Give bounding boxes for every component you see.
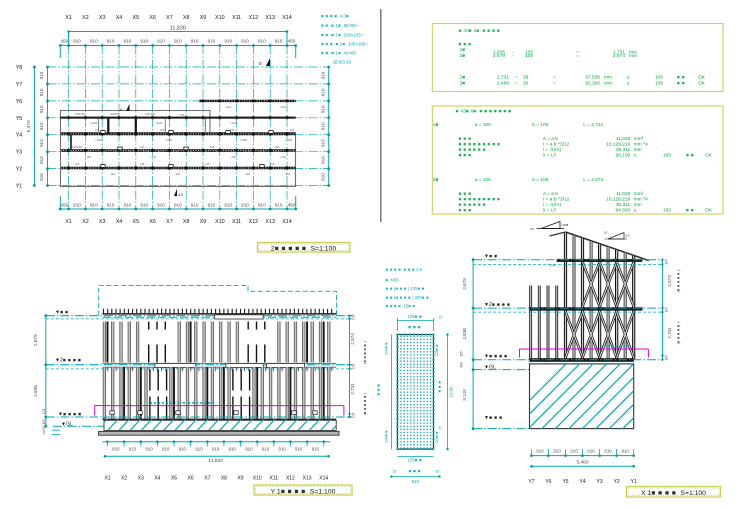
svg-text:I = a b ^3/12: I = a b ^3/12 <box>543 196 570 202</box>
svg-text:910: 910 <box>321 88 326 96</box>
svg-text:910: 910 <box>39 156 44 164</box>
svg-text:λ = L/i: λ = L/i <box>543 153 556 159</box>
svg-text:910: 910 <box>321 139 326 147</box>
svg-text:6,370: 6,370 <box>26 120 32 132</box>
svg-text:+728: +728 <box>150 155 156 159</box>
svg-text:■■■■■■: ■■■■■■ <box>459 148 488 153</box>
svg-text:Y3: Y3 <box>16 150 23 156</box>
svg-text:11,830: 11,830 <box>170 26 186 32</box>
svg-text:105x150: 105x150 <box>72 145 83 149</box>
svg-text:A = a b: A = a b <box>543 191 558 197</box>
svg-text:910: 910 <box>321 105 326 113</box>
svg-text:X1: X1 <box>104 476 110 482</box>
svg-text:910: 910 <box>604 449 612 454</box>
svg-text:125■■: 125■■ <box>407 458 423 463</box>
svg-text:105: 105 <box>459 351 463 357</box>
svg-text:Y2: Y2 <box>614 479 620 485</box>
svg-text:■■■■:4.0■: ■■■■:4.0■ <box>321 14 350 19</box>
svg-text:2,836: 2,836 <box>33 385 38 397</box>
svg-text:910: 910 <box>107 203 115 208</box>
svg-text:mm ^4: mm ^4 <box>634 196 649 202</box>
svg-text:2,574: 2,574 <box>350 333 355 345</box>
svg-text:+1082: +1082 <box>165 138 173 142</box>
svg-text:910: 910 <box>622 449 630 454</box>
svg-text:150: 150 <box>663 153 671 159</box>
svg-text:■■■: ■■■ <box>408 468 422 473</box>
svg-text:mm: mm <box>604 76 612 81</box>
svg-text:910: 910 <box>224 203 232 208</box>
svg-text:▼■■: ▼■■ <box>55 310 70 316</box>
svg-text:+728: +728 <box>85 155 91 159</box>
svg-text:mm: mm <box>634 203 642 208</box>
svg-text:X9: X9 <box>200 219 207 225</box>
svg-text:84.920: 84.920 <box>616 208 631 214</box>
svg-text:Y1: Y1 <box>16 184 23 190</box>
svg-text:X3: X3 <box>138 476 144 482</box>
svg-text:910: 910 <box>241 39 249 44</box>
svg-text:15: 15 <box>435 469 439 473</box>
svg-text:10,129,219: 10,129,219 <box>606 141 630 147</box>
svg-text:I = a b ^3/12: I = a b ^3/12 <box>543 141 570 147</box>
svg-text:Y1: Y1 <box>631 479 637 485</box>
svg-text:X12: X12 <box>249 15 259 21</box>
svg-text:Y7: Y7 <box>528 479 534 485</box>
svg-text:■■■■■■■■■: ■■■■■■■■■ <box>459 142 502 147</box>
svg-text:@303.33: @303.33 <box>333 60 351 65</box>
svg-text:■■■■■■: ■■■■■■ <box>459 203 488 208</box>
svg-text:910: 910 <box>258 203 266 208</box>
svg-text:■■■: ■■■ <box>459 137 473 142</box>
svg-text:Y4: Y4 <box>579 479 585 485</box>
svg-text:i = √(I/A): i = √(I/A) <box>543 202 562 208</box>
svg-text:OK: OK <box>698 81 706 87</box>
svg-text:30: 30 <box>523 81 529 87</box>
svg-text:105: 105 <box>352 364 356 370</box>
svg-text:910: 910 <box>229 447 237 452</box>
svg-text:105: 105 <box>290 128 295 132</box>
svg-text:105: 105 <box>352 314 356 320</box>
svg-text:910: 910 <box>321 71 326 79</box>
svg-text:910: 910 <box>262 447 270 452</box>
svg-text:450: 450 <box>61 203 69 208</box>
svg-text:5,460: 5,460 <box>576 460 588 466</box>
svg-text:450: 450 <box>288 203 296 208</box>
svg-text:150: 150 <box>663 208 671 214</box>
svg-text:910: 910 <box>162 447 170 452</box>
svg-text:450: 450 <box>61 39 69 44</box>
svg-text:2,574: 2,574 <box>667 275 672 287</box>
svg-text:105: 105 <box>664 355 668 361</box>
svg-text:15: 15 <box>439 426 443 430</box>
svg-text:■ N50: ■ N50 <box>386 277 400 282</box>
svg-text:910: 910 <box>124 203 132 208</box>
svg-text:/1,9: /1,9 <box>625 234 630 238</box>
svg-text:L = 2,574: L = 2,574 <box>583 177 603 183</box>
svg-text:X10: X10 <box>253 476 262 482</box>
svg-text:10,129,219: 10,129,219 <box>606 196 630 202</box>
svg-text:11,025: 11,025 <box>616 136 631 142</box>
svg-text:≥: ≥ <box>627 82 630 87</box>
svg-text:910: 910 <box>157 39 165 44</box>
svg-text:X6: X6 <box>149 15 156 21</box>
svg-text:2,679: 2,679 <box>493 53 505 59</box>
svg-text:11,025: 11,025 <box>616 191 631 197</box>
svg-text:+728: +728 <box>230 155 236 159</box>
svg-text:-364: -364 <box>285 172 291 176</box>
svg-text:+1436: +1436 <box>90 121 98 125</box>
svg-text:■■: ■■ <box>686 209 696 214</box>
svg-text:(■■■■■): (■■■■■) <box>676 269 681 292</box>
svg-text:105: 105 <box>180 113 185 117</box>
svg-text:910: 910 <box>245 447 253 452</box>
svg-text:a = 105: a = 105 <box>475 177 491 183</box>
svg-text:X3: X3 <box>99 219 106 225</box>
svg-text:■■:■1■ 105×105~: ■■:■1■ 105×105~ <box>321 33 364 38</box>
svg-text:105: 105 <box>42 409 46 415</box>
svg-text:mm²: mm² <box>634 136 644 142</box>
svg-text:-364: -364 <box>175 172 181 176</box>
svg-text:X11: X11 <box>270 476 279 482</box>
svg-text:Y6: Y6 <box>545 479 551 485</box>
svg-text:=: = <box>553 76 556 81</box>
svg-text:X2: X2 <box>82 219 89 225</box>
svg-text:1■: 1■ <box>433 122 441 128</box>
svg-text:97,536: 97,536 <box>585 75 600 81</box>
svg-text:mm ^4: mm ^4 <box>634 141 649 147</box>
svg-text:910: 910 <box>39 122 44 130</box>
svg-text:105: 105 <box>664 259 668 265</box>
svg-text:■■■■■■ GL+■,■■■■■■■: ■■■■■■ GL+■,■■■■■■■ <box>150 400 216 405</box>
svg-text:■■■: ■■■ <box>376 382 381 395</box>
svg-text:Y2: Y2 <box>16 167 23 173</box>
svg-text:÷: ÷ <box>515 82 518 87</box>
svg-text:105: 105 <box>210 145 215 149</box>
svg-text:910: 910 <box>208 39 216 44</box>
svg-text:mm²: mm² <box>634 191 644 197</box>
svg-text:910: 910 <box>73 39 81 44</box>
svg-text:b = 105: b = 105 <box>532 122 548 128</box>
svg-text:≤: ≤ <box>634 154 637 159</box>
svg-text:2,731: 2,731 <box>350 383 355 395</box>
svg-text:910: 910 <box>208 203 216 208</box>
svg-text:105: 105 <box>352 413 356 419</box>
svg-text:X10: X10 <box>215 15 225 21</box>
svg-text:Y8: Y8 <box>16 65 23 71</box>
svg-text:11,830: 11,830 <box>208 458 223 464</box>
svg-text:910: 910 <box>321 122 326 130</box>
svg-text:125■■: 125■■ <box>407 314 423 319</box>
svg-text:X8: X8 <box>221 476 227 482</box>
svg-text:910: 910 <box>145 447 153 452</box>
svg-text:(■■■■■): (■■■■■) <box>676 321 681 344</box>
svg-text:910: 910 <box>107 39 115 44</box>
svg-text:■■■: ■■■ <box>459 209 473 214</box>
svg-text:X8: X8 <box>183 219 190 225</box>
svg-text:■■■: ■■■ <box>459 154 473 159</box>
svg-text:Y7: Y7 <box>16 82 23 88</box>
svg-text:910: 910 <box>140 39 148 44</box>
svg-text:+1282: +1282 <box>95 138 103 142</box>
svg-text:105: 105 <box>270 162 275 166</box>
svg-text:▼GL: ▼GL <box>61 421 73 427</box>
svg-text:▼■■■■: ▼■■■■ <box>58 411 83 417</box>
svg-text:X14: X14 <box>282 15 292 21</box>
svg-text:OK: OK <box>705 208 713 214</box>
svg-text:X11: X11 <box>232 15 241 21</box>
svg-text:X11: X11 <box>232 219 241 225</box>
svg-text:X7: X7 <box>204 476 210 482</box>
svg-text:X14: X14 <box>282 219 292 225</box>
svg-text:Y3: Y3 <box>597 479 603 485</box>
svg-text:910: 910 <box>179 447 187 452</box>
svg-text:910: 910 <box>241 203 249 208</box>
svg-text:■■: ■■ <box>677 82 687 87</box>
svg-text:910: 910 <box>275 39 283 44</box>
svg-text:▼■■■: ▼■■■ <box>484 415 504 421</box>
svg-text:-364: -364 <box>245 172 251 176</box>
svg-text:208x150: 208x150 <box>75 112 86 116</box>
svg-text:910: 910 <box>90 39 98 44</box>
svg-text:910: 910 <box>157 203 165 208</box>
svg-text:1■: 1■ <box>460 75 468 81</box>
svg-text:X2: X2 <box>82 15 89 21</box>
svg-text:+1082: +1082 <box>285 138 293 142</box>
svg-text:910: 910 <box>258 39 266 44</box>
svg-text:450: 450 <box>288 39 296 44</box>
svg-text:X7: X7 <box>166 15 173 21</box>
svg-text:3,030: 3,030 <box>449 386 454 398</box>
svg-text:2■: 2■ <box>433 177 441 183</box>
svg-text:105: 105 <box>140 162 145 166</box>
svg-text:mm: mm <box>634 148 642 153</box>
svg-text:X10: X10 <box>215 219 225 225</box>
svg-text:+1436: +1436 <box>230 121 238 125</box>
svg-text:30.311: 30.311 <box>616 202 631 208</box>
svg-text:■■: ■■ <box>686 154 696 159</box>
svg-text:910: 910 <box>129 447 137 452</box>
svg-text:910: 910 <box>536 449 544 454</box>
svg-text:X5: X5 <box>133 219 140 225</box>
svg-text:mm: mm <box>604 82 612 87</box>
svg-text:28: 28 <box>523 75 529 81</box>
svg-text:910: 910 <box>39 105 44 113</box>
svg-text:X13: X13 <box>303 476 312 482</box>
svg-text:910: 910 <box>587 449 595 454</box>
svg-text:X13: X13 <box>265 15 275 21</box>
svg-text:X1: X1 <box>65 219 72 225</box>
svg-text:910: 910 <box>39 173 44 181</box>
svg-text:82,300: 82,300 <box>585 81 600 87</box>
svg-text:X7: X7 <box>166 219 173 225</box>
svg-text:105: 105 <box>275 145 280 149</box>
svg-text:2,836: 2,836 <box>462 328 467 340</box>
svg-text:Y 1■■■■ S=1:100: Y 1■■■■ S=1:100 <box>271 488 336 495</box>
svg-text:30.311: 30.311 <box>616 147 631 153</box>
svg-text:2,731: 2,731 <box>497 75 509 81</box>
svg-text:■43■1■ ■■■■: ■43■1■ ■■■■ <box>459 28 502 34</box>
svg-text:105x150: 105x150 <box>145 112 156 116</box>
svg-text:L = 2,731: L = 2,731 <box>583 122 603 128</box>
svg-text:■■■: ■■■ <box>408 326 422 331</box>
svg-text:910: 910 <box>321 156 326 164</box>
svg-text:910: 910 <box>174 203 182 208</box>
svg-text:4.5: 4.5 <box>530 227 534 231</box>
svg-text:910: 910 <box>295 447 303 452</box>
svg-text:+1082: +1082 <box>240 138 248 142</box>
svg-text:105: 105 <box>230 128 235 132</box>
svg-text:■■(■■■■) 200■■: ■■(■■■■) 200■■ <box>386 295 431 300</box>
svg-text:Y5: Y5 <box>562 479 568 485</box>
svg-text:105: 105 <box>205 162 210 166</box>
svg-text:+1436: +1436 <box>155 121 163 125</box>
svg-text:910: 910 <box>278 447 286 452</box>
svg-text:X1: X1 <box>65 15 72 21</box>
svg-text:■43■6■ ■■■■■■■: ■43■6■ ■■■■■■■ <box>456 109 514 115</box>
svg-text:910: 910 <box>191 203 199 208</box>
svg-text:X14: X14 <box>319 476 328 482</box>
svg-text:910: 910 <box>191 39 199 44</box>
svg-text:105: 105 <box>664 307 668 313</box>
svg-text:2,679: 2,679 <box>462 278 467 290</box>
svg-text:≥: ≥ <box>627 76 630 81</box>
svg-text:/1458: /1458 <box>562 223 569 227</box>
svg-text:910: 910 <box>39 139 44 147</box>
svg-text:+728: +728 <box>280 155 286 159</box>
svg-text:Y6: Y6 <box>16 99 23 105</box>
svg-text:910: 910 <box>275 203 283 208</box>
svg-text:910: 910 <box>73 203 81 208</box>
svg-text:X4: X4 <box>116 15 123 21</box>
svg-text:4.0: 4.0 <box>178 193 183 197</box>
svg-text:b = 105: b = 105 <box>532 177 548 183</box>
svg-text:■■■■■■■■: ■■■■■■■■ <box>600 345 631 349</box>
svg-text:■■■■ 15■■: ■■■■ 15■■ <box>386 303 417 308</box>
svg-text:X 1■■■■ S=1:100: X 1■■■■ S=1:100 <box>641 490 706 497</box>
svg-text:≤: ≤ <box>634 209 637 214</box>
svg-text:2■■■■■ S=1:100: 2■■■■■ S=1:100 <box>271 246 337 253</box>
svg-text:X5: X5 <box>171 476 177 482</box>
svg-text:105: 105 <box>140 145 145 149</box>
svg-text:910: 910 <box>312 447 320 452</box>
svg-text:910: 910 <box>39 71 44 79</box>
svg-text:A = a b: A = a b <box>543 136 558 142</box>
svg-text:105: 105 <box>655 75 663 81</box>
svg-text:■■■■ ■■■2.5: ■■■■ ■■■2.5 <box>386 267 423 272</box>
svg-text:÷: ÷ <box>515 76 518 81</box>
svg-text:105: 105 <box>655 81 663 87</box>
svg-text:▼GL: ▼GL <box>484 365 496 371</box>
svg-text:2,469: 2,469 <box>497 81 509 87</box>
svg-text:910: 910 <box>112 447 120 452</box>
svg-text:2■: 2■ <box>460 53 468 59</box>
svg-text:3,120: 3,120 <box>462 389 467 401</box>
svg-text:X4: X4 <box>116 219 123 225</box>
svg-text:910: 910 <box>140 203 148 208</box>
svg-text:▼■■: ▼■■ <box>484 254 499 260</box>
svg-text:910: 910 <box>224 39 232 44</box>
svg-text:X5: X5 <box>133 15 140 21</box>
svg-text:910: 910 <box>39 88 44 96</box>
svg-text:200■■: 200■■ <box>384 341 388 355</box>
svg-text:■■(■■■) 125■■: ■■(■■■) 125■■ <box>386 286 426 291</box>
svg-text:X6: X6 <box>149 219 156 225</box>
svg-text:■■■: ■■■ <box>459 42 473 47</box>
svg-text:■■■■■■■■■: ■■■■■■■■■ <box>459 197 502 202</box>
svg-text:105: 105 <box>525 53 533 59</box>
svg-text:200■■: 200■■ <box>384 429 388 443</box>
svg-text:2,731: 2,731 <box>667 327 672 339</box>
svg-text:X12: X12 <box>286 476 295 482</box>
svg-text:X9: X9 <box>200 15 207 21</box>
svg-text:+204: +204 <box>225 105 231 109</box>
svg-text:■■■: ■■■ <box>459 192 473 197</box>
svg-text:Y5: Y5 <box>16 116 23 122</box>
svg-text:125■■: 125■■ <box>435 343 439 357</box>
svg-text:OK: OK <box>698 75 706 81</box>
svg-text:910: 910 <box>553 449 561 454</box>
svg-text:λ = L/i: λ = L/i <box>543 208 556 214</box>
svg-text:▼■■■■: ▼■■■■ <box>484 354 509 360</box>
svg-text:mm: mm <box>629 54 637 59</box>
svg-text:=: = <box>553 82 556 87</box>
svg-text:X13: X13 <box>265 219 275 225</box>
svg-text:-364: -364 <box>110 172 116 176</box>
svg-text:Y4: Y4 <box>16 133 23 139</box>
svg-text:105: 105 <box>160 128 165 132</box>
svg-text:2,574: 2,574 <box>613 53 625 59</box>
svg-text:200: 200 <box>42 425 46 431</box>
svg-text:■■■: ■■■ <box>437 379 442 392</box>
svg-text:208x150: 208x150 <box>110 112 121 116</box>
svg-text:i = √(I/A): i = √(I/A) <box>543 147 562 153</box>
svg-text:X4: X4 <box>154 476 160 482</box>
svg-text:X8: X8 <box>183 15 190 21</box>
svg-text:■■: ■■ <box>677 76 687 81</box>
svg-text:910: 910 <box>124 39 132 44</box>
svg-text:105: 105 <box>95 128 100 132</box>
svg-text:910: 910 <box>90 203 98 208</box>
svg-text:2■: 2■ <box>460 81 468 87</box>
svg-text:(■■■■■): (■■■■■) <box>362 340 367 363</box>
svg-text:(■■■■■): (■■■■■) <box>362 392 367 415</box>
svg-text:910: 910 <box>174 39 182 44</box>
svg-text:910: 910 <box>570 449 578 454</box>
svg-text:X3: X3 <box>99 15 106 21</box>
svg-text:910: 910 <box>195 447 203 452</box>
svg-text:910: 910 <box>412 479 420 484</box>
svg-text:▼2■■■■: ▼2■■■■ <box>484 302 512 308</box>
svg-text:15: 15 <box>392 469 396 473</box>
svg-text:a = 105: a = 105 <box>475 122 491 128</box>
svg-text:90.100: 90.100 <box>616 153 631 159</box>
svg-text:10: 10 <box>604 231 607 235</box>
svg-text:X12: X12 <box>249 219 259 225</box>
svg-text:■■:■1■ 90×90~: ■■:■1■ 90×90~ <box>321 23 359 28</box>
svg-text:=: = <box>576 54 579 59</box>
svg-text:105: 105 <box>75 162 80 166</box>
svg-text:400: 400 <box>42 419 46 425</box>
svg-text:X2: X2 <box>121 476 127 482</box>
svg-text:▼2■■■■: ▼2■■■■ <box>55 358 83 364</box>
svg-text:910: 910 <box>321 173 326 181</box>
svg-text:X6: X6 <box>188 476 194 482</box>
svg-text:■■■:■1■ 105×105~: ■■■:■1■ 105×105~ <box>321 42 368 47</box>
svg-text:OK: OK <box>705 153 713 159</box>
svg-text:1■: 1■ <box>460 47 468 53</box>
svg-text:125■■: 125■■ <box>435 430 439 444</box>
svg-text:+204: +204 <box>280 105 286 109</box>
svg-text:910: 910 <box>212 447 220 452</box>
